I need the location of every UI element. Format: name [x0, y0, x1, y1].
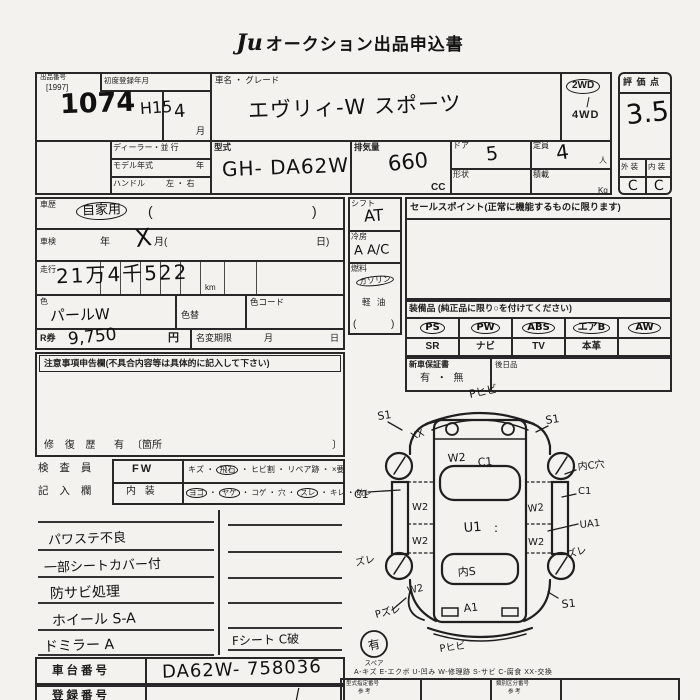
rule [145, 685, 147, 700]
note-line [38, 549, 214, 551]
equip-pw: PW [471, 322, 499, 334]
model-year-label: モデル年式 [113, 162, 153, 170]
item-separator: ・ [322, 465, 330, 474]
equip-cell: エアB [566, 319, 619, 337]
note-line [228, 524, 342, 526]
handle-label: ハンドル [113, 180, 145, 188]
equip-cell: ABS [513, 319, 566, 337]
fw-items-row: キズ ・ 飛石 ・ ヒビ割 ・ リペア跡 ・ ×要 [188, 465, 345, 475]
lot-number-value: 1074 [60, 89, 136, 119]
rule [110, 140, 112, 195]
equip-cell: ナビ [460, 339, 513, 355]
load-unit: Kg [598, 187, 608, 195]
year-unit: 年 [196, 162, 204, 170]
interior-item: 穴 [278, 488, 286, 497]
ann-rear-bumper: Pヒビ [439, 639, 466, 655]
item-separator: ・ [277, 465, 285, 474]
rule [35, 260, 345, 262]
rule [645, 158, 647, 194]
ann-rear-glass: 内S [457, 564, 476, 579]
item-separator: ・ [268, 488, 276, 497]
equipment-row-2: SR ナビ TV 本革 [407, 337, 670, 355]
equip-cell: 本革 [566, 339, 619, 355]
ju-logo: Ju [236, 30, 262, 56]
item-separator: ・ [241, 465, 249, 474]
car-name-label: 車名 ・ グレード [215, 76, 279, 85]
model-code-label: 型式 [214, 143, 231, 152]
history-paren-open: ( [148, 204, 153, 218]
item-separator: ・ [209, 488, 217, 497]
note-line [38, 576, 214, 578]
inspector-label-top: 検 査 員 [38, 463, 95, 474]
ann-roof: U1 [463, 520, 482, 536]
capacity-value: 4 [555, 141, 570, 163]
ann-right-ua1: UA1 [579, 518, 601, 531]
rule [182, 459, 184, 505]
ann-front-bumper: Pヒビ [468, 382, 499, 401]
chassis-label: 車台番号 [52, 666, 110, 678]
fuel-diesel-label: 軽 油 [362, 298, 387, 307]
drive-2wd-selected: 2WD [566, 79, 600, 94]
r-ticket-value: 9,750 [67, 327, 117, 349]
rule [110, 176, 210, 178]
rule [405, 218, 672, 220]
note-line [228, 627, 342, 629]
rule [218, 510, 220, 655]
footer-box1-sublabel: 参 考 [358, 690, 371, 696]
item-separator: ・ [320, 488, 328, 497]
registration-label: 登録番号 [52, 691, 110, 700]
note-line [228, 551, 342, 553]
rule [112, 482, 345, 484]
ann-left-sill: C1 [354, 488, 369, 501]
footer-box2-sublabel: 参 考 [508, 690, 521, 696]
ann-right-door-front: W2 [527, 502, 544, 515]
item-separator: ・ [206, 465, 214, 474]
equip-navi: ナビ [476, 342, 495, 352]
equip-cell-empty [619, 339, 670, 355]
door-value: 5 [485, 144, 499, 164]
equipment-header: 装備品 (純正品に限り○を付けてください) [409, 304, 572, 313]
rule [110, 158, 210, 160]
note-item-right: Fシート C破 [232, 633, 299, 647]
interior-items-row: ヨゴ ・ ヤケ ・ コゲ ・ 穴 ・ スレ ・ キレ ・ 破レ [186, 488, 372, 498]
rule [350, 140, 352, 195]
ann-rear-panel: A1 [463, 601, 479, 615]
equip-aw: AW [628, 322, 660, 334]
footer-box2-label: 類別区分番号 [496, 682, 529, 688]
note-item: ホイール S-A [52, 612, 136, 629]
equip-leather: 本革 [582, 342, 601, 352]
page-title: オークション出品申込書 [266, 35, 464, 54]
rule [560, 678, 562, 700]
rule [35, 140, 612, 142]
rule [340, 678, 342, 700]
equip-sr: SR [426, 342, 440, 352]
repair-history-label: 修 復 歴 [44, 441, 100, 451]
dealer-label: ディーラー・並 行 [113, 144, 179, 152]
rule [190, 328, 192, 350]
equip-ps: PS [420, 322, 445, 334]
repair-location-close: 〕 [332, 441, 342, 451]
equip-tv: TV [532, 342, 545, 352]
handle-lr-label: 左 ・ 右 [166, 180, 194, 188]
item-separator: ・ [242, 488, 250, 497]
equip-cell: TV [513, 339, 566, 355]
mileage-value: 21万4千522 [56, 262, 189, 287]
rule [420, 678, 422, 700]
shaken-x-mark: X [133, 225, 153, 251]
color-change-label: 色替 [181, 311, 199, 320]
item-separator: ・ [288, 488, 296, 497]
rule [200, 262, 201, 294]
ann-front-left-fender: S1 [377, 408, 393, 423]
score-value: 3.5 [625, 98, 671, 129]
color-value: パールW [50, 307, 110, 324]
equip-cell: PS [407, 319, 460, 337]
nc-month: 月 [264, 334, 273, 343]
shaken-label: 車検 [40, 238, 56, 246]
rule [245, 294, 247, 328]
month-unit: 月 [196, 127, 205, 136]
history-label: 車歴 [40, 201, 56, 209]
ann-roof-marks: : [494, 521, 498, 535]
note-line [228, 602, 342, 604]
ann-front-w2: W2 [447, 451, 466, 465]
capacity-unit: 人 [599, 157, 607, 165]
interior-item-circled: ヤケ [219, 488, 240, 498]
equip-abs: ABS [522, 322, 555, 334]
ac-value: A A/C [354, 243, 390, 257]
drive-4wd-label: 4WD [572, 110, 599, 121]
history-paren-close: ) [312, 204, 317, 218]
damage-legend: A-キズ E-エクボ U-凹み W-修理跡 S-サビ C-腐食 XX-交換 [354, 669, 552, 676]
sales-point-header: セールスポイント(正常に機能するものに限ります) [410, 203, 621, 212]
note-line [38, 602, 214, 604]
rule [145, 657, 147, 685]
fuel-label: 燃料 [351, 265, 367, 273]
note-line [228, 649, 342, 651]
equip-airbag: エアB [573, 322, 611, 334]
rule [35, 228, 345, 230]
note-line [228, 577, 342, 579]
interior-label: 内 装 [648, 163, 665, 171]
displacement-unit: CC [431, 183, 445, 193]
note-item: ドミラー A [44, 638, 114, 654]
shaken-day-close: 日) [316, 238, 329, 248]
spare-label: スペア [364, 659, 384, 667]
doc-header: Juオークション出品申込書 [0, 30, 700, 56]
fw-item: ×要 [332, 465, 345, 474]
exterior-label: 外 装 [621, 163, 638, 171]
score-header: 評 価 点 [623, 78, 660, 87]
repair-location-open: 〔箇所 [132, 441, 162, 451]
ann-left-rear-w2: W2 [406, 583, 424, 597]
interior-row-label: 内 装 [126, 487, 158, 497]
era-value: H15 [139, 99, 172, 117]
history-value: 自家用 [76, 201, 128, 221]
equip-cell: AW [619, 319, 670, 337]
note-item: 一部シートカバー付 [44, 558, 161, 575]
warranty-label: 新車保証書 [409, 361, 449, 369]
ann-p-zure: Pズレ [374, 602, 402, 621]
rule [175, 294, 177, 328]
note-line [38, 629, 214, 631]
notice-header: 注意事項申告欄(不具合内容等は具体的に記入して下さい) [44, 359, 270, 368]
note-item: 防サビ処理 [50, 585, 120, 601]
fw-item-circled: 飛石 [216, 465, 238, 475]
rule [35, 294, 345, 296]
ann-left-zure: ズレ [354, 552, 376, 569]
equip-cell: SR [407, 339, 460, 355]
interior-grade: C [654, 179, 665, 194]
color-label: 色 [40, 298, 48, 306]
ann-front-c1: C1 [477, 455, 493, 469]
interior-item: キレ [330, 488, 345, 497]
shaken-year-unit: 年 [100, 238, 110, 248]
shift-value: AT [363, 207, 384, 224]
fw-item: キズ [188, 465, 204, 474]
auction-sheet: Juオークション出品申込書 出品番号 [1997] 1074 H15 初度登録年… [0, 0, 700, 700]
ann-left-door-rear: W2 [412, 536, 428, 547]
ac-label: 冷房 [351, 233, 367, 241]
car-damage-diagram: Pヒビ S1 XX S1 内C穴 W2 C1 C1 W2 W2 U1 : 内S … [352, 382, 664, 670]
mileage-label: 走行 [40, 266, 56, 274]
rule [560, 72, 562, 140]
footer-box1-label: 型式指定番号 [346, 682, 379, 688]
shape-label: 形状 [453, 171, 469, 179]
displacement-label: 排気量 [354, 143, 380, 152]
repair-history-value: 有 [114, 441, 124, 451]
first-registration-month: 4 [173, 103, 186, 122]
rule [490, 678, 492, 700]
equipment-row-1: PS PW ABS エアB AW [407, 319, 670, 337]
r-ticket-label: R券 [40, 334, 56, 343]
exterior-grade: C [628, 179, 639, 194]
rule [450, 168, 612, 170]
interior-item: コゲ [251, 488, 266, 497]
shaken-month-open: 月( [154, 238, 167, 248]
name-change-label: 名変期限 [196, 334, 232, 343]
rule [256, 262, 257, 294]
fw-label: FW [132, 464, 153, 475]
ann-right-sill: C1 [578, 486, 591, 497]
fuel-paren-close: ) [391, 320, 394, 330]
ann-rear-right-fender: S1 [561, 597, 576, 611]
interior-item-circled: スレ [297, 488, 318, 498]
equip-cell: PW [460, 319, 513, 337]
ann-front-right-wheel: 内C穴 [577, 457, 605, 473]
interior-item-circled: ヨゴ [186, 488, 207, 498]
ann-right-door-rear: W2 [528, 537, 544, 548]
displacement-value: 660 [387, 150, 429, 175]
ann-front-right-fender: S1 [545, 412, 561, 427]
fw-item: ヒビ割 [251, 465, 275, 474]
yen-unit: 円 [168, 333, 179, 344]
sales-point-box [405, 197, 672, 300]
note-line [38, 521, 214, 523]
nc-day: 日 [330, 334, 339, 343]
rule [678, 678, 680, 700]
mileage-unit: km [205, 284, 216, 292]
capacity-label: 定員 [533, 142, 549, 150]
color-code-label: 色コード [250, 298, 284, 307]
lot-number-label: 出品番号 [40, 75, 66, 82]
later-item-label: 後日品 [495, 361, 518, 369]
note-item: パワステ不良 [48, 532, 126, 548]
fuel-paren-open: ( [353, 320, 356, 330]
fw-item: リペア跡 [287, 465, 319, 474]
inspector-label-bottom: 記 入 欄 [38, 486, 95, 497]
load-label: 積載 [533, 171, 549, 179]
ann-left-door-front: W2 [412, 502, 428, 513]
rule [340, 678, 680, 680]
first-registration-label: 初度登録年月 [104, 77, 149, 85]
door-label: ドア [453, 142, 469, 150]
ann-front-left-xx: XX [409, 428, 426, 443]
rule [224, 262, 225, 294]
model-code-value: GH- DA62W [222, 155, 350, 179]
rule [618, 92, 672, 94]
spare-stamp-mark: 有 [367, 637, 382, 653]
